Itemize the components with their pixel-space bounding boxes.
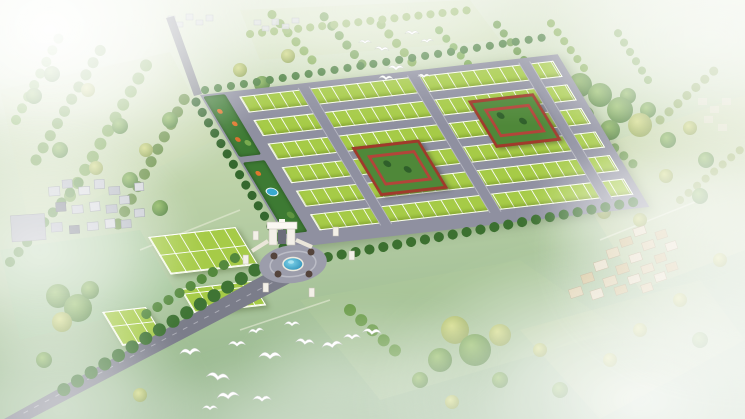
fog-cloud	[120, 340, 540, 419]
planter	[306, 271, 313, 278]
linear-park-upper	[203, 94, 261, 157]
fog-cloud	[180, 0, 560, 90]
linear-park-lower	[243, 160, 308, 234]
fog-cloud	[0, 0, 280, 220]
cross-street	[407, 74, 502, 213]
boundary-trees	[60, 36, 645, 392]
fog-cloud	[0, 120, 200, 380]
farm-field-patches	[0, 0, 745, 419]
tree-clumps	[46, 73, 652, 372]
plot-row	[239, 61, 563, 113]
detached-plot-block	[148, 227, 258, 275]
fog-cloud	[500, 0, 745, 160]
plot-row	[253, 84, 577, 136]
right-haze	[0, 0, 745, 419]
fog-cloud	[520, 140, 745, 280]
fog-cloud	[240, 300, 500, 419]
planter	[275, 271, 282, 278]
garden-tree	[495, 112, 506, 119]
courtyard-tree	[402, 166, 413, 173]
courtyard-path	[367, 150, 433, 186]
north-exit-road	[166, 16, 202, 96]
planter	[271, 253, 278, 260]
farm-tracks	[140, 60, 700, 330]
top-haze	[0, 0, 745, 419]
fog-cloud	[360, 240, 745, 419]
orange-canopy	[231, 121, 239, 126]
park-lawn	[285, 211, 296, 218]
access-road	[4, 268, 292, 419]
village-east	[557, 218, 688, 315]
detached-plot-block	[102, 307, 166, 346]
settlements-north	[168, 14, 299, 31]
plot-row	[282, 131, 606, 183]
fog-cloud	[540, 100, 745, 400]
plot-row	[310, 179, 634, 231]
north-east-garden	[468, 93, 562, 148]
orange-canopy	[234, 137, 242, 142]
settlement-far-east	[698, 98, 731, 131]
orange-canopy	[216, 109, 224, 114]
terrain-layer	[0, 0, 745, 419]
courtyard-tree	[382, 160, 393, 167]
gate-pillars	[243, 227, 355, 297]
egret-flock-lower	[179, 322, 381, 411]
plot-row	[267, 108, 591, 160]
swimming-pool	[264, 187, 281, 197]
central-courtyard-garden	[351, 140, 448, 197]
roads-entrance-layer	[0, 0, 745, 419]
garden-path	[483, 104, 546, 137]
birds-layer	[0, 0, 745, 419]
orange-canopy	[254, 171, 262, 176]
tree-rows	[10, 10, 740, 355]
detached-plot-block	[180, 281, 266, 314]
aerial-render-scene	[0, 0, 745, 419]
plot-row	[296, 155, 620, 207]
garden-tree	[518, 117, 529, 124]
cross-street	[518, 61, 613, 200]
entrance-plaza	[257, 241, 329, 287]
plotted-development	[200, 54, 649, 247]
planter	[308, 249, 315, 256]
entrance-arch-gate	[252, 219, 312, 251]
fog-cloud	[0, 300, 210, 419]
park-lawn	[243, 140, 252, 146]
egret-flock-upper	[359, 31, 434, 81]
cross-street	[298, 87, 393, 226]
village-west	[8, 175, 147, 242]
scattered-trees	[26, 49, 727, 409]
fountain	[283, 258, 303, 271]
